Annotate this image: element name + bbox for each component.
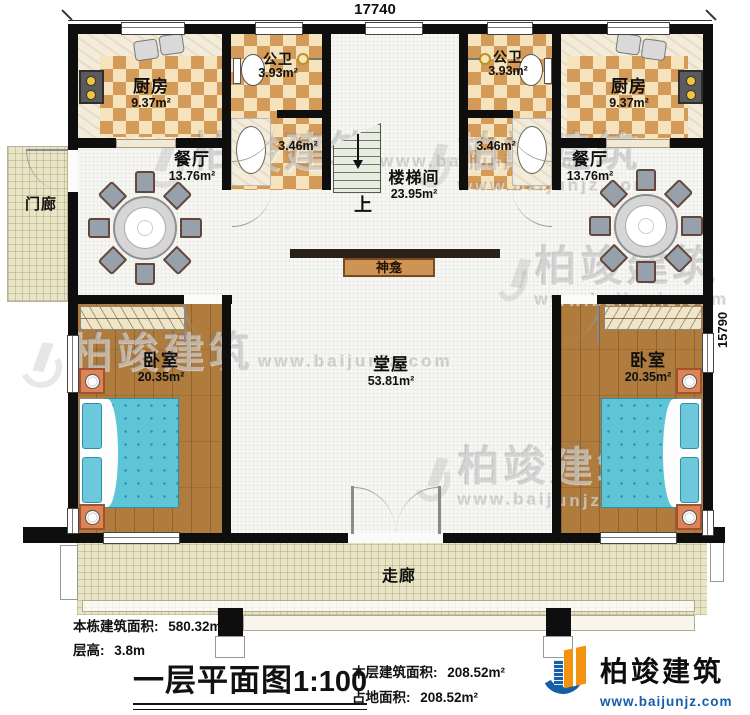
shrine-label: 神龛: [376, 260, 402, 275]
wall: [176, 138, 222, 148]
floor-area-label: 本层建筑面积:: [352, 665, 438, 680]
column: [546, 608, 571, 636]
porch-pillar: [60, 545, 78, 600]
dimension-tick-left: [61, 9, 72, 20]
wall: [23, 527, 68, 543]
footprint-label: 占地面积:: [352, 690, 411, 705]
door-leaf: [26, 149, 68, 151]
toilet-tank: [233, 58, 241, 84]
room-label-stairwell: 楼梯间 23.95m²: [388, 170, 439, 201]
room-label-kitchen-left: 厨房 9.37m²: [131, 78, 171, 110]
window: [600, 532, 677, 544]
room-label-hall: 堂屋 53.81m²: [368, 356, 415, 388]
building-area-label: 本栋建筑面积:: [73, 619, 159, 634]
wall: [670, 138, 712, 148]
stair-arrow: [357, 134, 359, 162]
dimension-tick-right: [705, 9, 716, 20]
window: [487, 22, 533, 35]
window: [607, 22, 670, 35]
brand-logo-icon: [542, 646, 596, 702]
wardrobe: [604, 306, 702, 330]
plan-title: 一层平面图1:100: [133, 655, 367, 710]
room-label-porch: 门廊: [25, 197, 57, 214]
door-opening: [348, 533, 443, 543]
floor-plan: 17740 15790 柏竣建筑 www.baijunjz.com 柏竣建筑 w…: [0, 0, 750, 715]
wall: [459, 24, 468, 190]
dimension-width: 17740: [340, 1, 410, 18]
nightstand: [79, 368, 105, 394]
towel-bar: [309, 58, 322, 60]
wall: [277, 110, 331, 118]
porch-pillar: [710, 540, 724, 582]
logo-building: [564, 646, 586, 689]
door-opening: [561, 295, 597, 304]
room-label-bath-right: 公卫 3.93m²: [488, 50, 528, 79]
towel-ring-icon: [297, 53, 309, 65]
area-label-wash-left: 3.46m²: [278, 140, 318, 154]
wall: [552, 295, 561, 543]
logo-tower: [554, 660, 563, 688]
nightstand: [676, 368, 702, 394]
pillow: [680, 457, 699, 503]
nightstand: [676, 504, 702, 530]
shrine-shelf: [290, 249, 500, 258]
room-label-dining-right: 餐厅 13.76m²: [567, 151, 614, 183]
towel-bar: [468, 58, 480, 60]
floor-area-value: 208.52m²: [447, 665, 505, 680]
floor-height-label: 层高:: [73, 643, 105, 658]
brand-name: 柏竣建筑: [600, 650, 733, 690]
brand-website: www.baijunjz.com: [600, 694, 733, 709]
title-underline: [133, 703, 367, 710]
shrine-cabinet: 神龛: [343, 258, 435, 277]
window: [67, 335, 79, 393]
wall: [322, 24, 331, 190]
room-label-kitchen-right: 厨房 9.37m²: [609, 78, 649, 110]
window: [121, 22, 185, 35]
building-area-value: 580.32m²: [168, 619, 226, 634]
wall: [222, 295, 231, 543]
wall: [68, 24, 78, 543]
window: [702, 333, 714, 373]
room-label-bedroom-left: 卧室 20.35m²: [138, 352, 185, 384]
area-label-wash-right: 3.46m²: [476, 140, 516, 154]
wall: [561, 138, 606, 148]
corridor-step-lower: [243, 615, 695, 631]
pass-through-counter: [606, 139, 670, 148]
pillow: [82, 403, 102, 449]
floor-area-row: 本层建筑面积: 208.52m²: [352, 661, 505, 681]
dining-table: [113, 196, 177, 260]
dimension-line-top: [68, 20, 712, 21]
pillow: [680, 403, 699, 449]
window: [103, 532, 180, 544]
footprint-value: 208.52m²: [420, 690, 478, 705]
building-area-row: 本栋建筑面积: 580.32m²: [73, 615, 226, 635]
stove: [79, 70, 104, 104]
wall: [552, 24, 561, 190]
door-leaf: [597, 304, 599, 342]
pillow: [82, 457, 102, 503]
window: [365, 22, 423, 35]
door-leaf: [184, 304, 186, 342]
room-label-dining-left: 餐厅 13.76m²: [169, 151, 216, 183]
window: [67, 508, 79, 534]
bed-blanket-fold: [663, 399, 678, 507]
up-direction-arrow-icon: [353, 160, 363, 169]
room-label-corridor: 走廊: [382, 568, 416, 586]
wall: [222, 24, 231, 190]
nightstand: [79, 504, 105, 530]
wardrobe: [80, 306, 186, 330]
corridor-step: [82, 600, 695, 612]
room-label-bath-left: 公卫 3.93m²: [258, 52, 298, 81]
door-opening: [68, 150, 78, 192]
brand-block: 柏竣建筑 www.baijunjz.com: [600, 650, 733, 709]
wall: [68, 138, 116, 148]
toilet-tank: [544, 58, 552, 84]
dining-table: [614, 194, 678, 258]
wall: [459, 110, 513, 118]
stair-up-label: 上: [354, 196, 372, 216]
watermark-logo-icon: [14, 340, 68, 394]
window: [702, 510, 714, 536]
window: [255, 22, 303, 35]
pass-through-counter: [116, 139, 176, 148]
stove: [678, 70, 703, 104]
footprint-row: 占地面积: 208.52m²: [352, 686, 478, 706]
dimension-height: 15790: [715, 272, 730, 348]
door-opening: [184, 295, 222, 304]
wall: [703, 24, 713, 543]
room-label-bedroom-right: 卧室 20.35m²: [625, 352, 672, 384]
door-leaf: [438, 486, 441, 534]
